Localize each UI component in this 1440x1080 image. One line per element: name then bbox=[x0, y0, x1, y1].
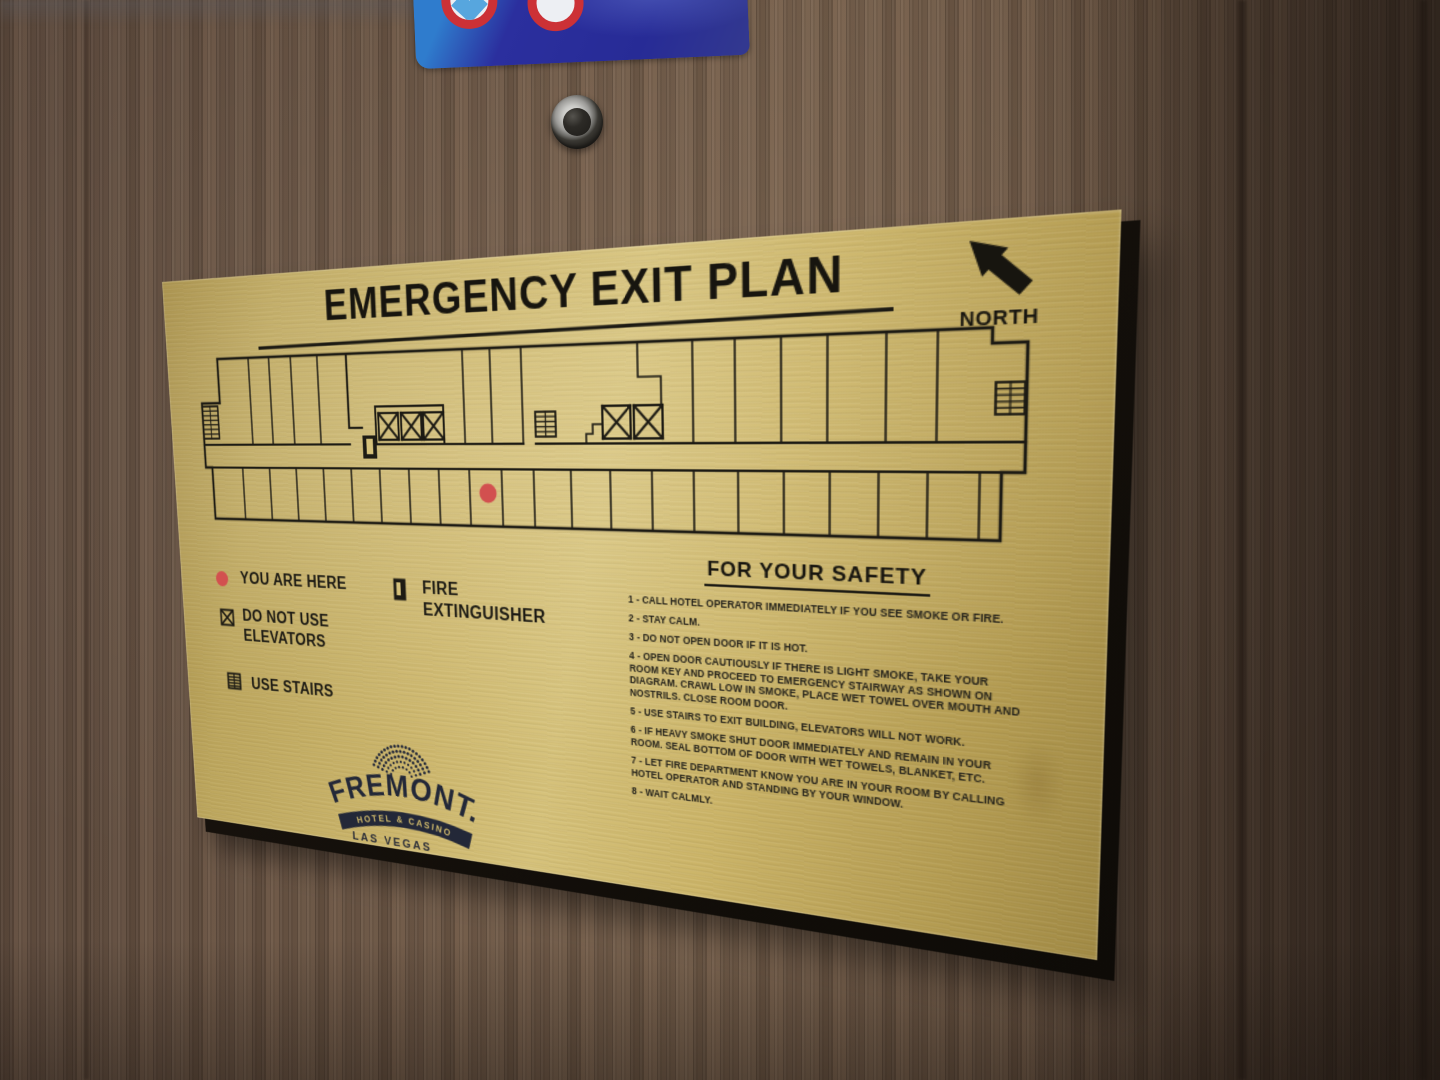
elevator-icons bbox=[378, 405, 663, 440]
wall-shading bbox=[0, 940, 1440, 1080]
wood-seam bbox=[84, 0, 89, 1080]
use-stairs-icon bbox=[227, 672, 242, 691]
corridor bbox=[199, 326, 1028, 472]
safety-heading: FOR YOUR SAFETY bbox=[705, 557, 930, 597]
peephole-lens bbox=[563, 108, 591, 136]
do-not-use-elevators-label: DO NOT USE ELEVATORS bbox=[242, 606, 331, 652]
use-stairs-label: USE STAIRS bbox=[251, 675, 334, 703]
fire-extinguisher-legend-icon bbox=[393, 578, 407, 601]
fire-extinguisher-marker bbox=[362, 435, 377, 458]
no-entry-icon bbox=[526, 0, 584, 32]
stairs-icons bbox=[202, 382, 1026, 439]
prohibition-symbol-icon bbox=[451, 0, 488, 23]
you-are-here-label: YOU ARE HERE bbox=[240, 569, 348, 595]
do-not-use-elevators-icon bbox=[219, 608, 235, 627]
north-arrow-icon bbox=[957, 224, 1044, 304]
room-dividers-bottom bbox=[243, 468, 980, 540]
wall-shading bbox=[0, 0, 420, 26]
floor-plan bbox=[196, 323, 1035, 550]
fire-extinguisher-label: FIRE EXTINGUISHER bbox=[422, 578, 546, 629]
north-indicator: NORTH bbox=[946, 223, 1055, 332]
building-outline bbox=[199, 326, 1028, 541]
emergency-exit-plaque: EMERGENCY EXIT PLAN NORTH bbox=[162, 209, 1121, 960]
you-are-here-legend-icon bbox=[216, 571, 229, 587]
no-entry-icon bbox=[440, 0, 498, 30]
safety-instructions: FOR YOUR SAFETY 1 - CALL HOTEL OPERATOR … bbox=[627, 554, 1025, 852]
you-are-here-dot bbox=[479, 483, 497, 503]
door-peephole bbox=[551, 95, 603, 149]
